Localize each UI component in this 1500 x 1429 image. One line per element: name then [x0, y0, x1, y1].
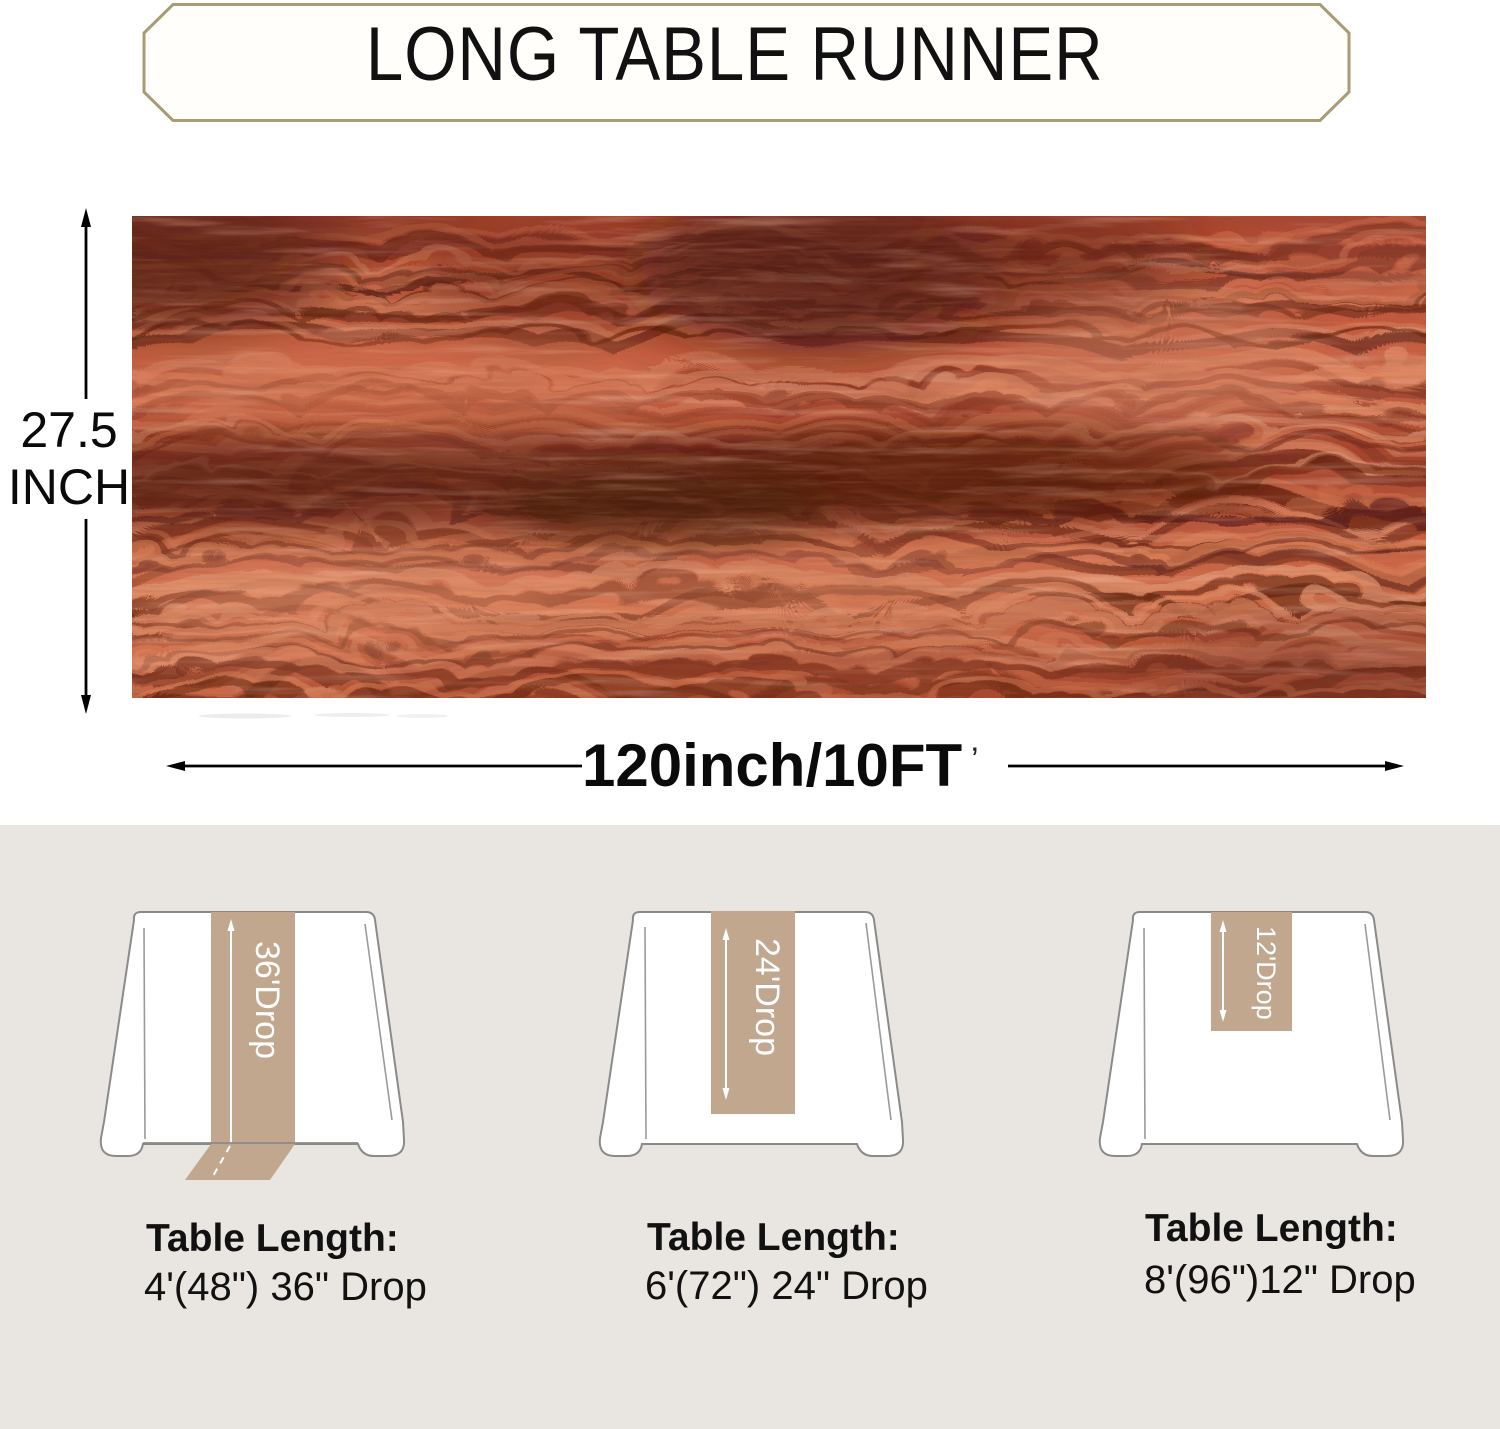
svg-text:24'Drop: 24'Drop [748, 938, 786, 1056]
svg-text:36'Drop: 36'Drop [248, 941, 286, 1059]
svg-text:12'Drop: 12'Drop [1251, 926, 1281, 1020]
